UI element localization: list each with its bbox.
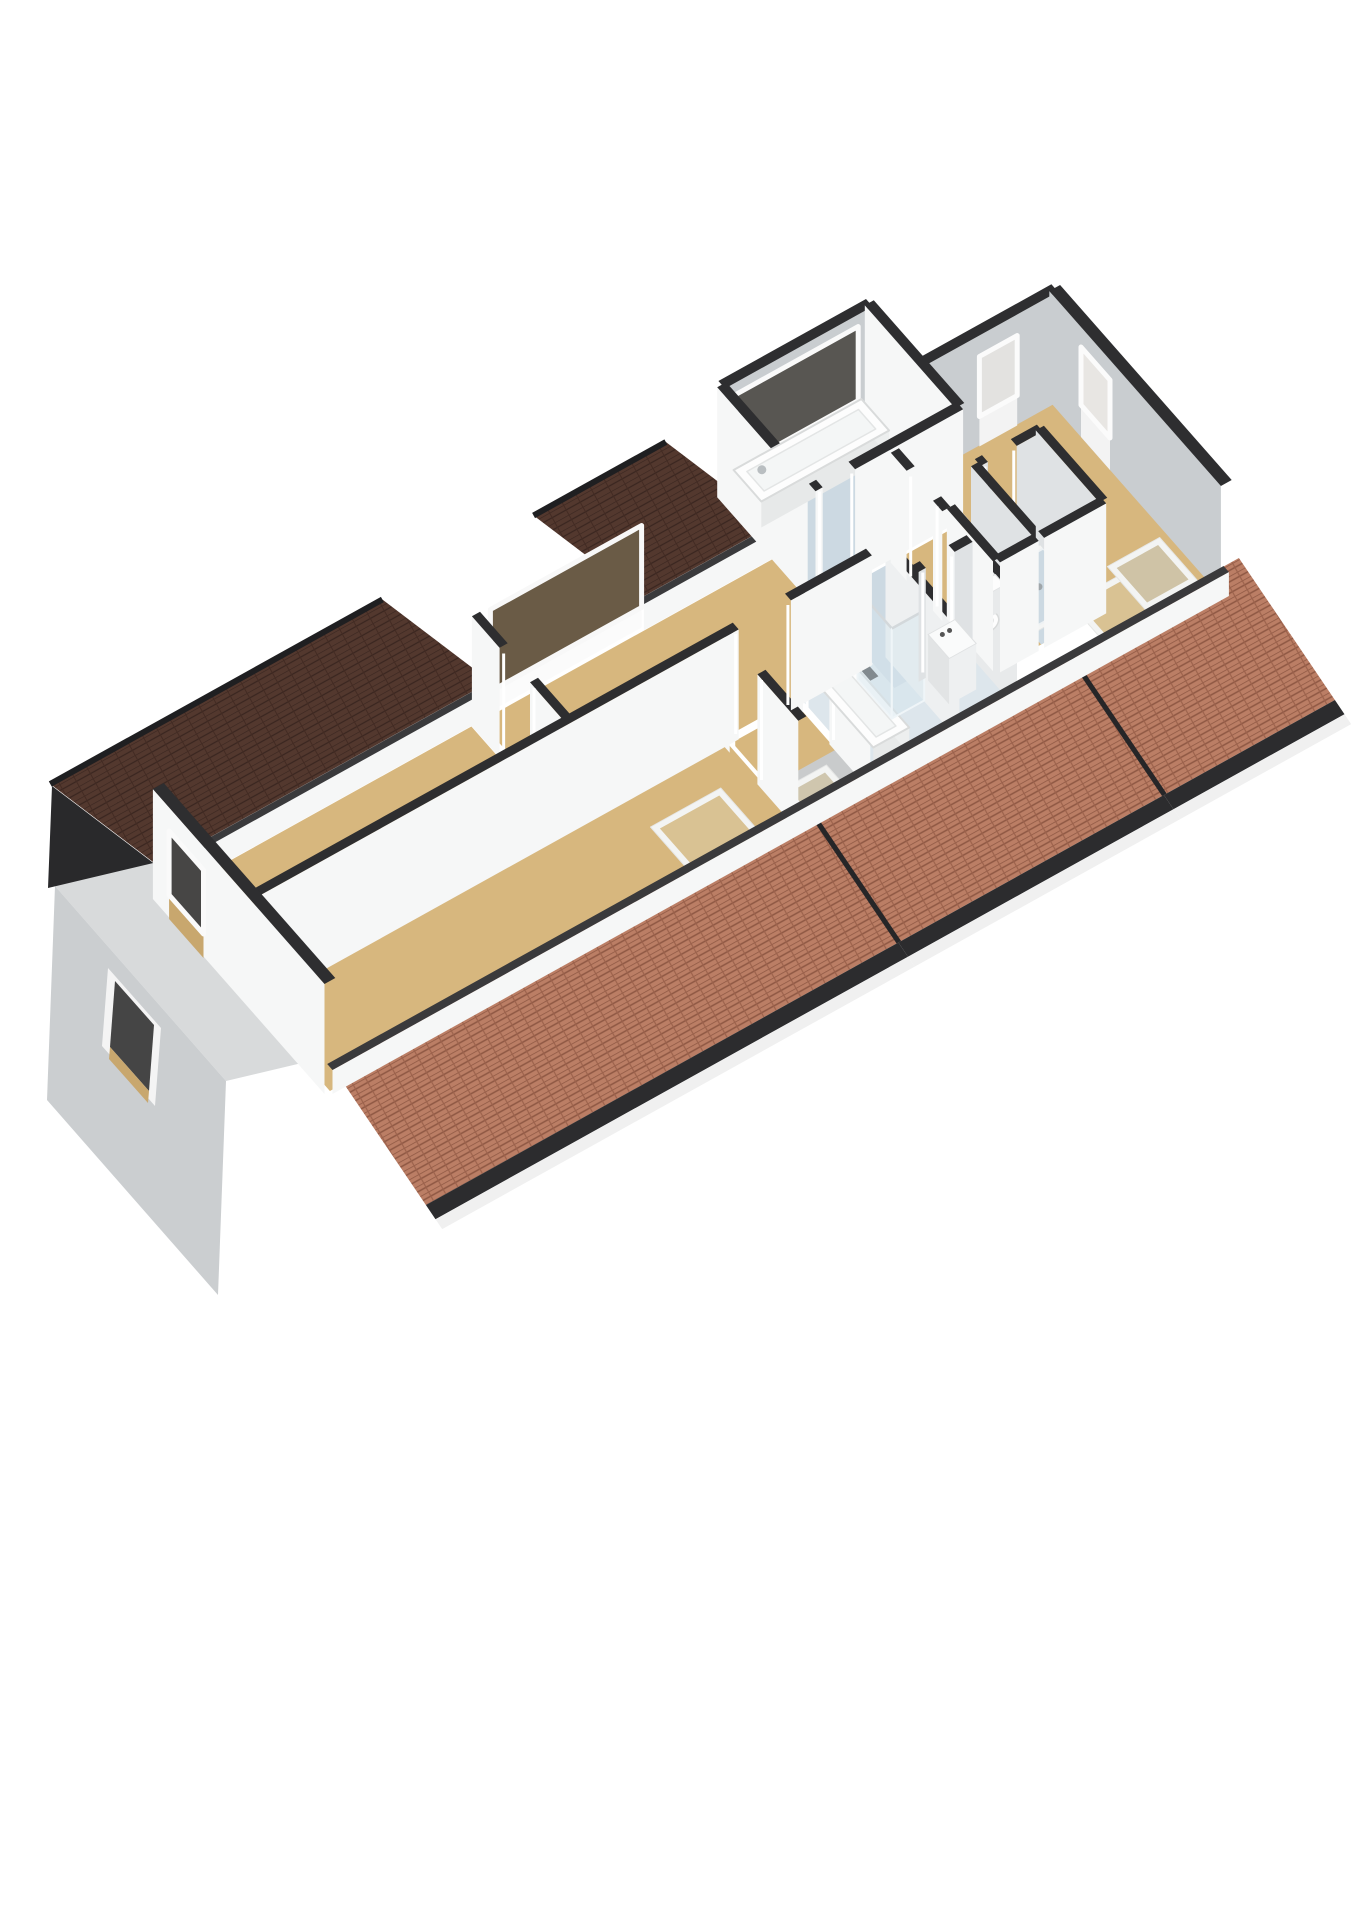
bathtub-main-faucet bbox=[757, 465, 766, 474]
floorplan-svg bbox=[0, 0, 1358, 1920]
boiler-dot-2 bbox=[947, 628, 952, 633]
boiler-dot-1 bbox=[940, 632, 945, 637]
floorplan-3d-render bbox=[0, 0, 1358, 1920]
scene-root bbox=[47, 284, 1351, 1295]
wall-corridor-east-a-face bbox=[891, 453, 907, 581]
wall-toilet-south-face bbox=[1000, 541, 1039, 673]
